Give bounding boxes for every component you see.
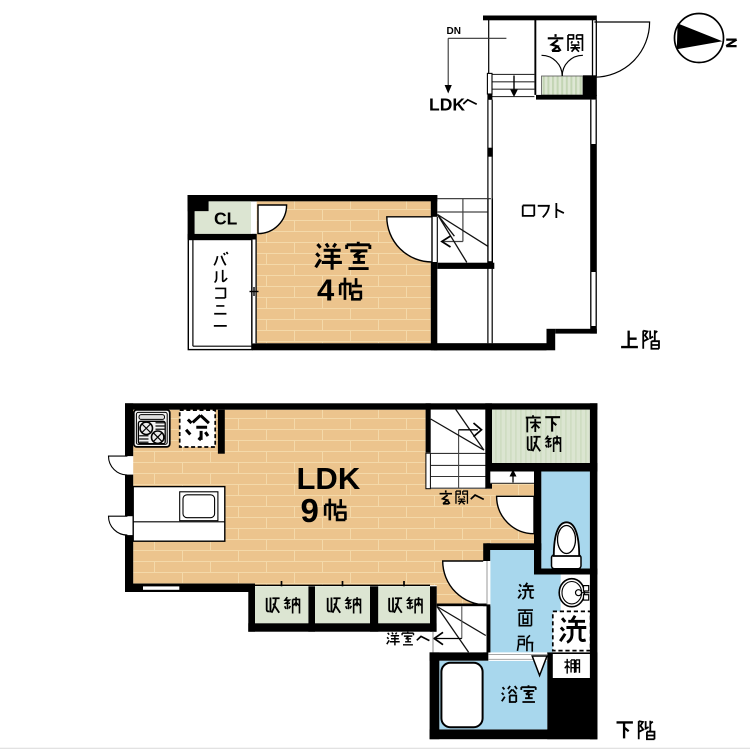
svg-text:DN: DN — [447, 26, 461, 37]
svg-text:LDK: LDK — [429, 95, 465, 115]
svg-text:CL: CL — [214, 209, 238, 229]
svg-text:4: 4 — [317, 273, 335, 308]
svg-text:9: 9 — [301, 492, 319, 529]
svg-text:LDK: LDK — [297, 461, 361, 496]
